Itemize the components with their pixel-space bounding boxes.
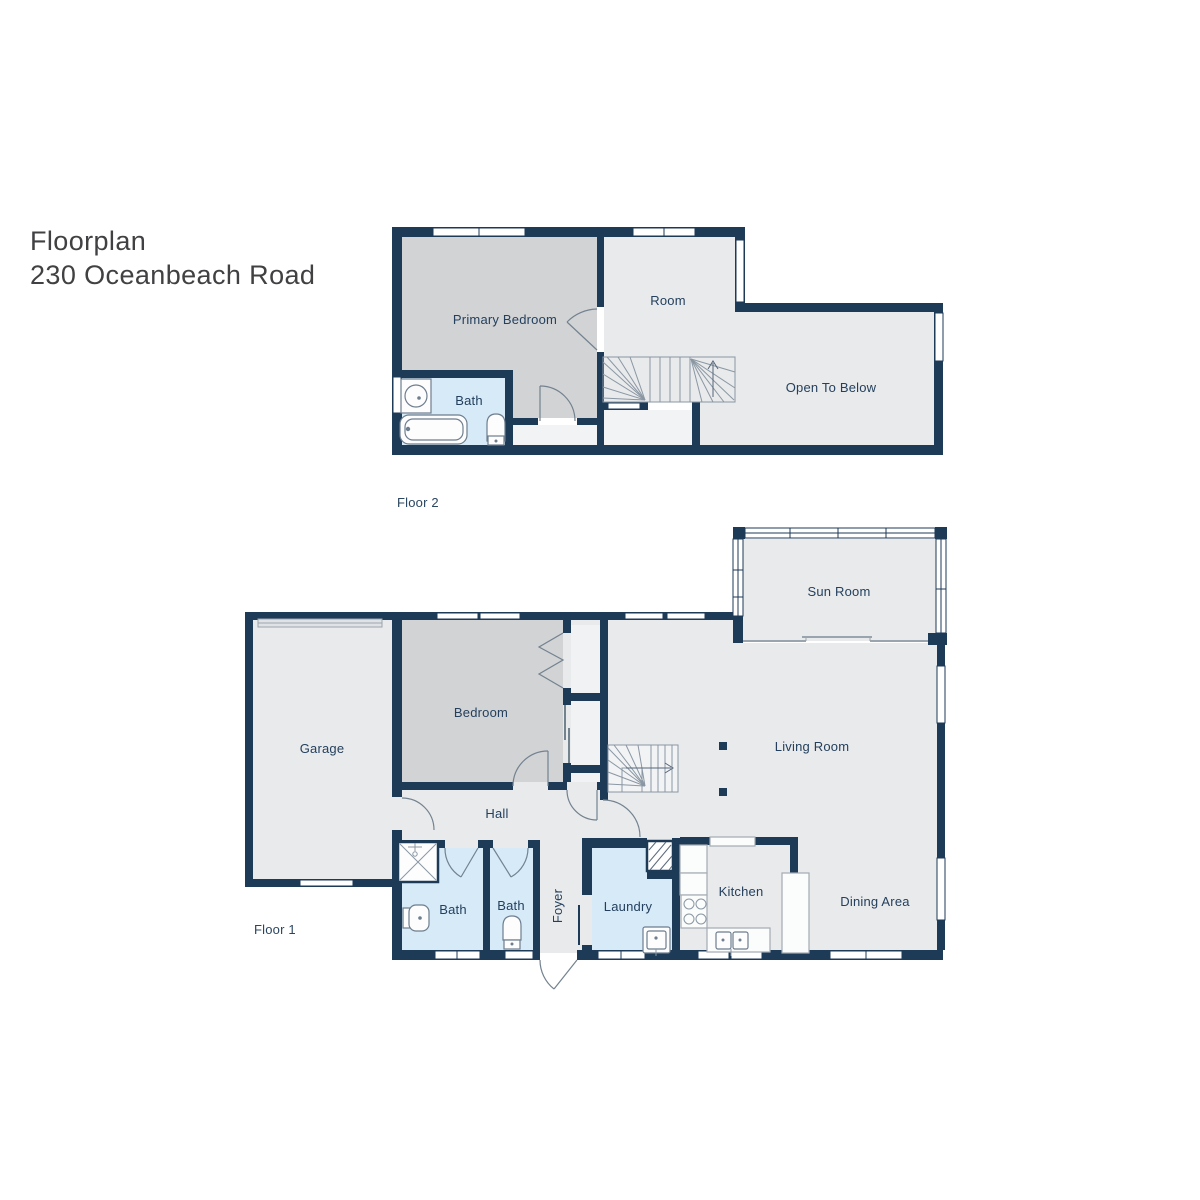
floorplan-drawing: Primary Bedroom Room Bath Open To Below bbox=[0, 0, 1200, 1200]
room-label-dining: Dining Area bbox=[840, 894, 910, 909]
room-label-primary-bedroom: Primary Bedroom bbox=[453, 312, 557, 327]
room-label-bath-1: Bath bbox=[439, 902, 467, 917]
front-door-leaf bbox=[554, 960, 577, 989]
floor-1-plan: Garage Bedroom Hall Bath Bath Foyer Laun… bbox=[245, 527, 947, 989]
floor-2-room-fills bbox=[402, 237, 934, 445]
sink-drain-icon bbox=[417, 396, 421, 400]
toilet-button-icon-b1 bbox=[418, 916, 422, 920]
front-door-arc bbox=[540, 960, 554, 989]
kitchen-peninsula-counter bbox=[782, 873, 809, 953]
room-label-garage: Garage bbox=[300, 741, 345, 756]
kitchen-counter-mid bbox=[680, 873, 707, 895]
closet-2 bbox=[571, 701, 600, 765]
room-closet-f2 bbox=[513, 425, 597, 445]
utility-hatch-box bbox=[647, 841, 673, 871]
floorplan-page: Floorplan 230 Oceanbeach Road Floor 2 Fl… bbox=[0, 0, 1200, 1200]
sink-icon bbox=[405, 385, 427, 407]
floor-2-plan: Primary Bedroom Room Bath Open To Below bbox=[392, 227, 943, 455]
room-label-room: Room bbox=[650, 293, 685, 308]
room-label-kitchen: Kitchen bbox=[719, 884, 764, 899]
room-label-sunroom: Sun Room bbox=[807, 584, 870, 599]
bath-2-fixtures bbox=[503, 916, 521, 949]
room-bedroom bbox=[402, 620, 563, 782]
bathtub-inner-icon bbox=[405, 419, 463, 440]
laundry-sink-drain-icon bbox=[654, 936, 657, 939]
kitchen-passthrough-counter bbox=[710, 837, 755, 846]
kitchen-counter-upper bbox=[680, 845, 707, 873]
room-label-bath-f2: Bath bbox=[455, 393, 483, 408]
laundry-fixtures bbox=[643, 927, 670, 956]
room-label-foyer: Foyer bbox=[550, 888, 565, 923]
toilet-icon-b2 bbox=[503, 916, 521, 940]
stair-landing-f2 bbox=[603, 410, 692, 445]
room-label-open-to-below: Open To Below bbox=[786, 380, 877, 395]
toilet-button-icon-f2 bbox=[495, 440, 498, 443]
toilet-button-icon-b2 bbox=[511, 943, 514, 946]
door-gap-bedroom-landing bbox=[538, 418, 577, 425]
door-gap-bedroom-room bbox=[597, 307, 604, 352]
room-label-hall: Hall bbox=[485, 806, 508, 821]
closet-3 bbox=[571, 773, 600, 782]
room-label-bath-2: Bath bbox=[497, 898, 525, 913]
room-label-bedroom: Bedroom bbox=[454, 705, 508, 720]
room-label-laundry: Laundry bbox=[604, 899, 653, 914]
room-label-living: Living Room bbox=[775, 739, 849, 754]
tub-faucet-icon bbox=[406, 427, 410, 431]
garage-door bbox=[258, 619, 382, 627]
closet-1 bbox=[571, 625, 600, 693]
laundry-sink-basin-icon bbox=[647, 931, 666, 949]
